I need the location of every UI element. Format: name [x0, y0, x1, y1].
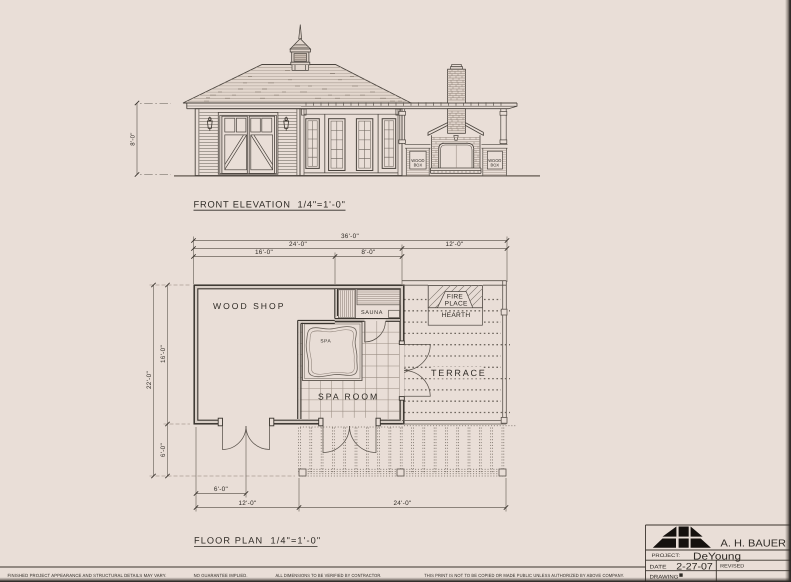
svg-text:8'-0": 8'-0" [130, 132, 137, 145]
svg-text:DATE: DATE [650, 564, 668, 570]
svg-text:PROJECT:: PROJECT: [652, 553, 681, 559]
svg-text:24'-0": 24'-0" [393, 500, 411, 507]
svg-text:NO GUARANTEE IMPLIED.: NO GUARANTEE IMPLIED. [194, 573, 248, 578]
svg-text:SPA ROOM: SPA ROOM [318, 392, 379, 402]
svg-text:BOX: BOX [490, 163, 499, 168]
svg-text:WOOD SHOP: WOOD SHOP [213, 301, 285, 311]
svg-text:6'-0": 6'-0" [160, 443, 167, 457]
svg-text:FINISHED PROJECT APPEARANCE AN: FINISHED PROJECT APPEARANCE AND STRUCTUR… [8, 573, 167, 578]
svg-text:8'-0": 8'-0" [361, 249, 375, 256]
svg-text:16'-0": 16'-0" [160, 345, 167, 363]
svg-text:FRONT ELEVATION 1/4"=1'-0": FRONT ELEVATION 1/4"=1'-0" [194, 200, 346, 210]
svg-text:12'-0": 12'-0" [238, 500, 256, 507]
svg-text:HEARTH: HEARTH [442, 312, 471, 319]
svg-text:2-27-07: 2-27-07 [676, 560, 713, 571]
svg-text:SPA: SPA [320, 338, 331, 344]
svg-text:PLACE: PLACE [445, 300, 468, 307]
svg-text:6'-0": 6'-0" [214, 486, 228, 493]
svg-text:36'-0": 36'-0" [341, 233, 359, 240]
svg-text:TERRACE: TERRACE [431, 368, 487, 378]
svg-text:FLOOR PLAN 1/4"=1'-0": FLOOR PLAN 1/4"=1'-0" [194, 536, 321, 546]
svg-text:22'-0": 22'-0" [146, 371, 153, 389]
svg-text:SAUNA: SAUNA [361, 310, 383, 316]
svg-text:BOX: BOX [414, 163, 423, 168]
svg-text:16'-0": 16'-0" [255, 249, 273, 256]
svg-text:A. H. BAUER: A. H. BAUER [721, 538, 787, 549]
svg-text:ALL DIMENSIONS TO BE VERIFIED: ALL DIMENSIONS TO BE VERIFIED BY CONTRAC… [276, 573, 382, 578]
svg-text:REVISED: REVISED [720, 563, 744, 569]
svg-text:THIS PRINT IS NOT TO BE COPIED: THIS PRINT IS NOT TO BE COPIED OR MADE P… [424, 573, 624, 578]
svg-text:12'-0": 12'-0" [445, 241, 463, 248]
svg-text:24'-0": 24'-0" [289, 241, 307, 248]
